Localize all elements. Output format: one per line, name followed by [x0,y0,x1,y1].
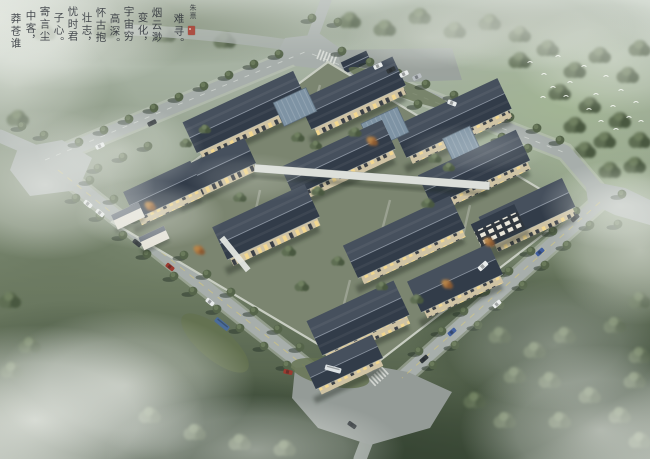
fog-layer [0,0,650,459]
calligraphy-column: 莽苍谁 [10,13,21,49]
calligraphy-column: 高深。 [109,13,120,49]
calligraphy-column: 寄言尘 [39,6,50,42]
calligraphy-signature: 朱熹 [189,4,196,20]
calligraphy-column: 宇宙穷 [123,6,134,42]
calligraphy-column: 怀古抱 [95,7,106,43]
calligraphy-column: 中客， [25,10,36,46]
calligraphy-column: 烟云渺 [151,7,162,43]
calligraphy-column: 变化， [137,12,148,48]
calligraphy-column: 壮志， [81,12,92,48]
aerial-view [0,0,650,459]
calligraphy-column: 忧时君 [67,6,78,42]
architectural-rendering: 莽苍谁 中客， 寄言尘 子心。 忧时君 壮志， 怀古抱 高深。 宇宙穷 变化， … [0,0,650,459]
calligraphy-column: 子心。 [53,12,64,48]
calligraphy-column: 难寻。 [173,13,184,49]
artist-seal-icon [188,26,195,35]
